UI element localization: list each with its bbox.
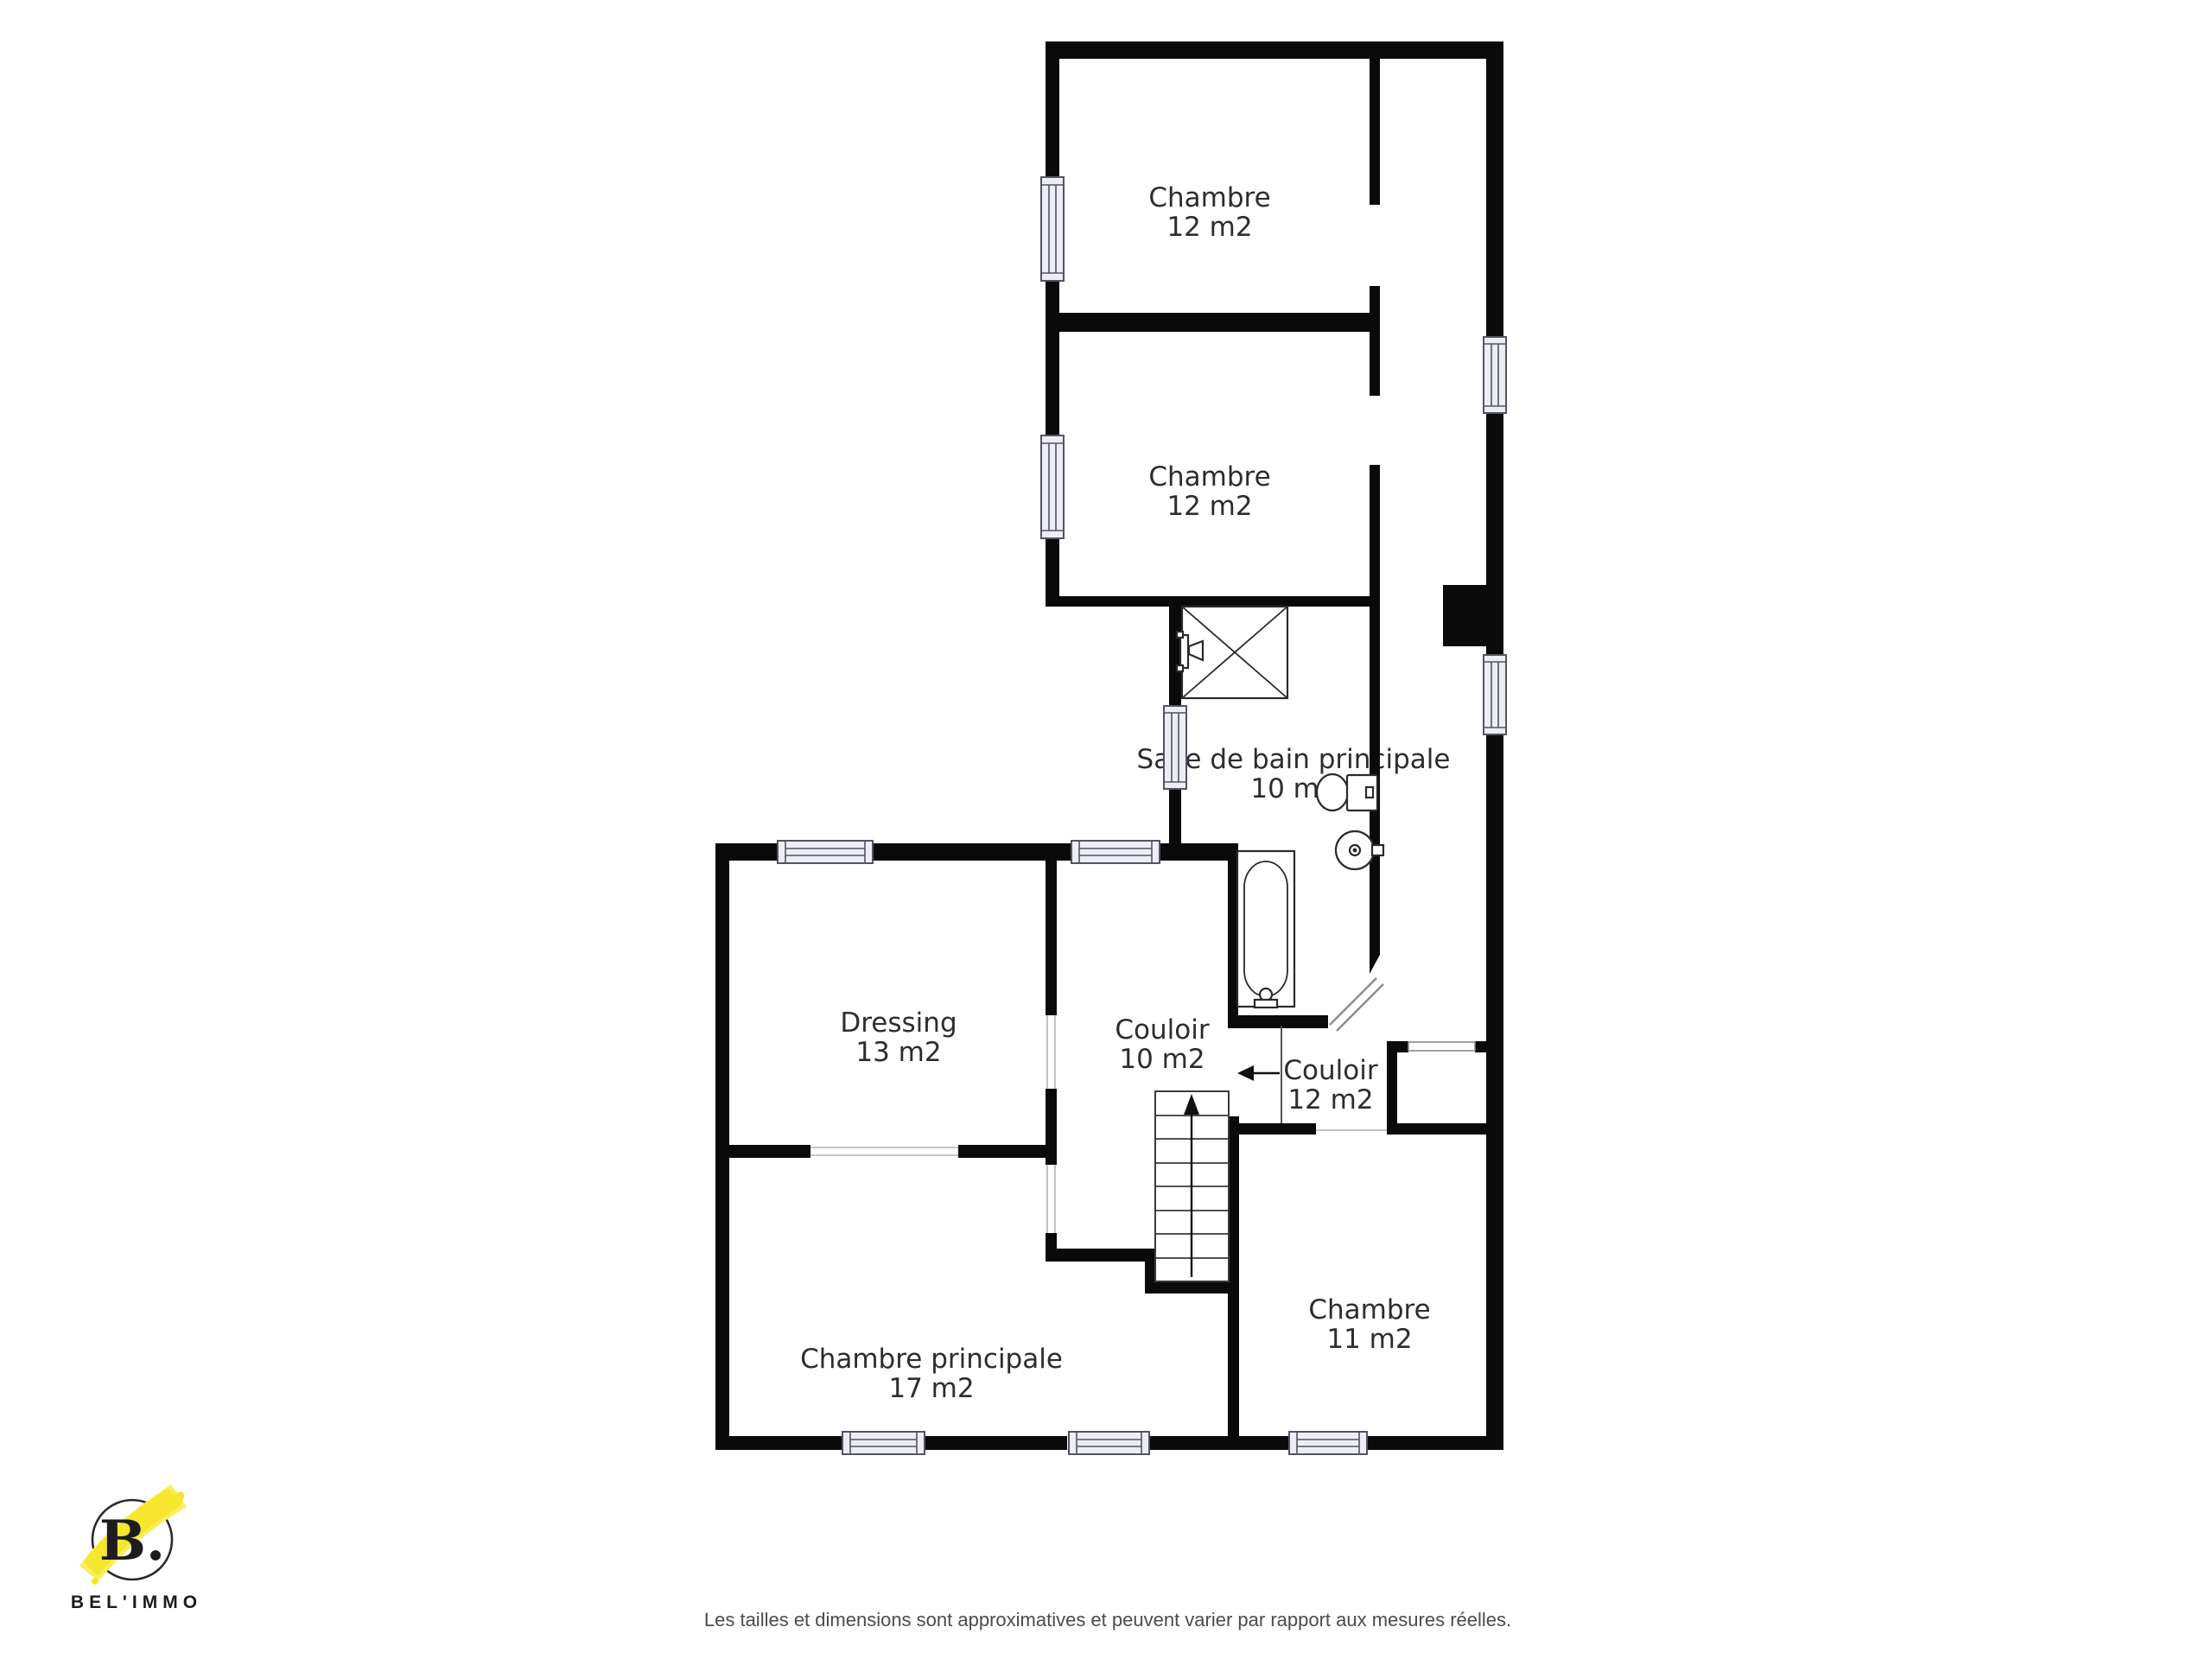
room-name: Chambre: [1308, 1294, 1430, 1325]
window: [1041, 177, 1064, 281]
room-area: 12 m2: [1166, 491, 1252, 522]
room-area: 12 m2: [1287, 1084, 1373, 1116]
door-direction-arrow: [1237, 1065, 1280, 1081]
bathroom-fixtures: [1177, 607, 1383, 1007]
room-name: Dressing: [840, 1007, 957, 1039]
logo-initial: B.: [99, 1509, 165, 1573]
bathtub: [1237, 851, 1294, 1007]
window: [1041, 435, 1064, 538]
window: [1289, 1432, 1367, 1454]
room-area: 13 m2: [855, 1037, 941, 1068]
room-label-chambre-11: Chambre 11 m2: [1308, 1294, 1430, 1355]
shower: [1177, 607, 1287, 698]
room-area: 11 m2: [1326, 1324, 1412, 1355]
room-name: Couloir: [1115, 1014, 1209, 1046]
door-swing: [1330, 978, 1383, 1031]
room-label-chambre-second: Chambre 12 m2: [1148, 461, 1270, 522]
disclaimer-text: Les tailles et dimensions sont approxima…: [704, 1609, 1511, 1630]
logo: B. BEL'IMMO: [71, 1484, 202, 1612]
room-label-chambre-top: Chambre 12 m2: [1148, 182, 1270, 243]
window: [842, 1432, 925, 1454]
windows: [778, 177, 1506, 1454]
window: [1071, 841, 1160, 863]
window: [778, 841, 873, 863]
window: [1069, 1432, 1149, 1454]
room-name: Chambre: [1148, 182, 1270, 213]
window: [1164, 706, 1186, 789]
window: [1484, 337, 1506, 413]
floor-plan-page: Chambre 12 m2 Chambre 12 m2 Salle de bai…: [0, 0, 2212, 1659]
window: [1484, 655, 1506, 734]
room-name: Couloir: [1283, 1055, 1377, 1086]
room-area: 10 m2: [1119, 1044, 1205, 1075]
niche-opening: [1408, 1042, 1475, 1051]
logo-wordmark: BEL'IMMO: [71, 1592, 202, 1612]
room-label-dressing: Dressing 13 m2: [840, 1007, 957, 1068]
toilet: [1317, 774, 1377, 810]
room-label-couloir-10: Couloir 10 m2: [1115, 1014, 1209, 1075]
room-area: 17 m2: [888, 1373, 974, 1404]
staircase: [1155, 1091, 1229, 1281]
floor-plan: Chambre 12 m2 Chambre 12 m2 Salle de bai…: [0, 0, 2212, 1659]
room-label-couloir-12: Couloir 12 m2: [1283, 1055, 1377, 1116]
room-label-chambre-principale: Chambre principale 17 m2: [800, 1344, 1063, 1404]
room-name: Chambre: [1148, 461, 1270, 493]
room-name: Chambre principale: [800, 1344, 1063, 1375]
room-area: 12 m2: [1166, 212, 1252, 243]
